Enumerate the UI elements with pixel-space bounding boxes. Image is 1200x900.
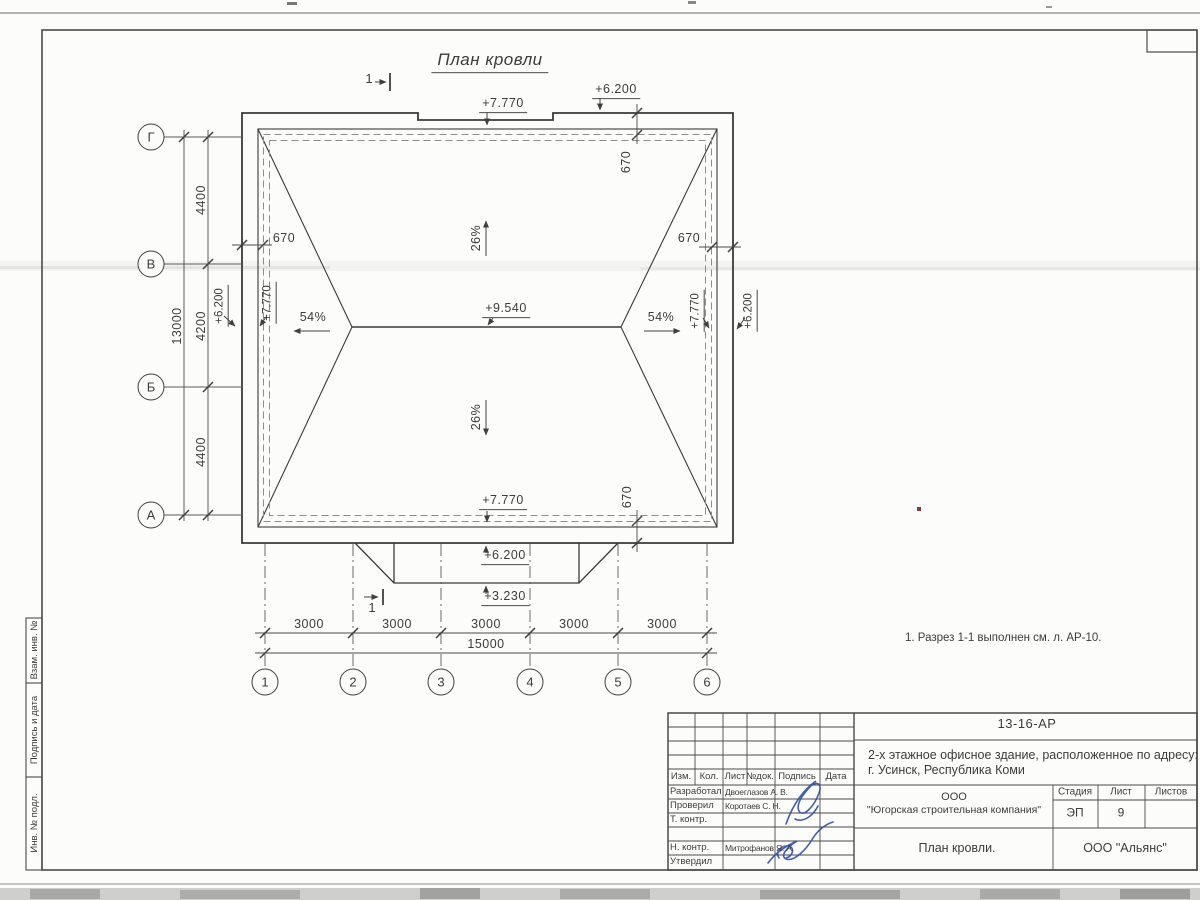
stamp-vzam-inv: Взам. инв. № xyxy=(30,621,40,680)
dim-4400-bottom: 4400 xyxy=(195,437,209,467)
col-date: Дата xyxy=(825,772,846,782)
dimension-ticks xyxy=(179,108,738,658)
role-developed: Разработал xyxy=(670,787,722,798)
role-checked: Проверил xyxy=(670,801,714,812)
elevation-canopy-top: +6.200 xyxy=(481,549,529,565)
axis-bubble-2: 2 xyxy=(340,669,367,696)
object-name-line1: 2-х этажное офисное здание, расположенно… xyxy=(868,748,1198,762)
doc-number: 13-16-АР xyxy=(998,717,1057,731)
designer-company-line1: ООО xyxy=(941,791,967,803)
stage-label: Стадия xyxy=(1058,787,1092,798)
slope-label-54-left: 54% xyxy=(300,311,327,325)
axis-bubble-b: Б xyxy=(138,374,165,401)
sheet-number-value: 9 xyxy=(1118,806,1125,819)
role-approved: Утвердил xyxy=(670,857,712,868)
col-kol: Кол. xyxy=(700,772,719,782)
axis-bubble-a: А xyxy=(138,502,165,529)
dim-4400-top: 4400 xyxy=(195,185,209,215)
role-ncontrol-name: Митрофанов Я. А. xyxy=(725,844,794,854)
drawing-name: План кровли. xyxy=(918,842,995,856)
dim-3000-2: 3000 xyxy=(382,618,412,632)
dim-15000: 15000 xyxy=(467,638,504,652)
overhang-dim-right: 670 xyxy=(678,232,700,246)
scanned-sheet: План кровли 1 +7.770 +6.200 670 670 670 … xyxy=(0,0,1200,900)
slope-label-54-right: 54% xyxy=(648,311,675,325)
col-izm: Изм. xyxy=(671,772,691,782)
role-ncontrol: Н. контр. xyxy=(670,843,709,854)
drawing-title: План кровли xyxy=(431,51,548,73)
elevation-parapet-high-top: +7.770 xyxy=(479,97,527,113)
elevation-parapet-high-left: +7.770 xyxy=(262,282,277,324)
axis-bubble-v: В xyxy=(138,251,165,278)
elevation-parapet-high-right: +7.770 xyxy=(690,290,705,332)
dim-4200: 4200 xyxy=(195,311,209,341)
dim-3000-1: 3000 xyxy=(294,618,324,632)
elevation-parapet-low-right: +6.200 xyxy=(743,290,758,332)
object-name-line2: г. Усинск, Республика Коми xyxy=(868,763,1025,777)
section-marks xyxy=(364,73,390,605)
axis-bubble-6: 6 xyxy=(694,669,721,696)
stage-value: ЭП xyxy=(1066,806,1083,819)
axis-bubble-4: 4 xyxy=(517,669,544,696)
dimension-lines xyxy=(184,104,741,653)
section-mark-bottom-label: 1 xyxy=(368,601,375,615)
axis-bubble-1: 1 xyxy=(252,669,279,696)
overhang-dim-bottom-right: 670 xyxy=(621,486,635,508)
axis-lines xyxy=(164,137,707,668)
overhang-dim-left: 670 xyxy=(273,232,295,246)
col-list: Лист xyxy=(725,772,746,782)
overhang-dim-top-right: 670 xyxy=(620,151,634,173)
note-text: 1. Разрез 1-1 выполнен см. л. АР-10. xyxy=(905,632,1102,645)
section-mark-top-label: 1 xyxy=(365,72,372,86)
sheet-label: Лист xyxy=(1110,787,1132,798)
role-checked-name: Коротаев С. Н. xyxy=(725,802,781,812)
slope-label-26-bottom: 26% xyxy=(470,404,484,431)
axis-bubble-3: 3 xyxy=(428,669,455,696)
elevation-parapet-low-left: +6.200 xyxy=(214,285,229,327)
elevation-parapet-high-bottom: +7.770 xyxy=(479,494,527,510)
contractor-name: ООО "Альянс" xyxy=(1083,842,1167,856)
dim-13000: 13000 xyxy=(171,307,185,344)
stamp-podpis-data: Подпись и дата xyxy=(30,696,40,764)
designer-company-line2: "Югорская строительная компания" xyxy=(867,805,1041,817)
dim-3000-4: 3000 xyxy=(559,618,589,632)
elevation-ridge: +9.540 xyxy=(482,302,530,318)
col-sign: Подпись xyxy=(778,772,816,782)
stamp-inv-podl: Инв. № подл. xyxy=(30,793,40,852)
dim-3000-5: 3000 xyxy=(647,618,677,632)
sheets-label: Листов xyxy=(1155,787,1188,798)
roof-gutter-dashed xyxy=(264,135,712,522)
role-tcontrol: Т. контр. xyxy=(670,815,707,826)
col-doc: №док. xyxy=(746,772,774,782)
axis-bubble-g: Г xyxy=(138,124,165,151)
leader-arrows xyxy=(224,98,745,594)
axis-bubble-5: 5 xyxy=(605,669,632,696)
elevation-canopy-low: +3.230 xyxy=(481,590,529,606)
dim-3000-3: 3000 xyxy=(471,618,501,632)
slope-label-26-top: 26% xyxy=(470,225,484,252)
role-developed-name: Двоеглазов А. В. xyxy=(725,788,788,798)
elevation-parapet-low-top: +6.200 xyxy=(592,83,640,99)
